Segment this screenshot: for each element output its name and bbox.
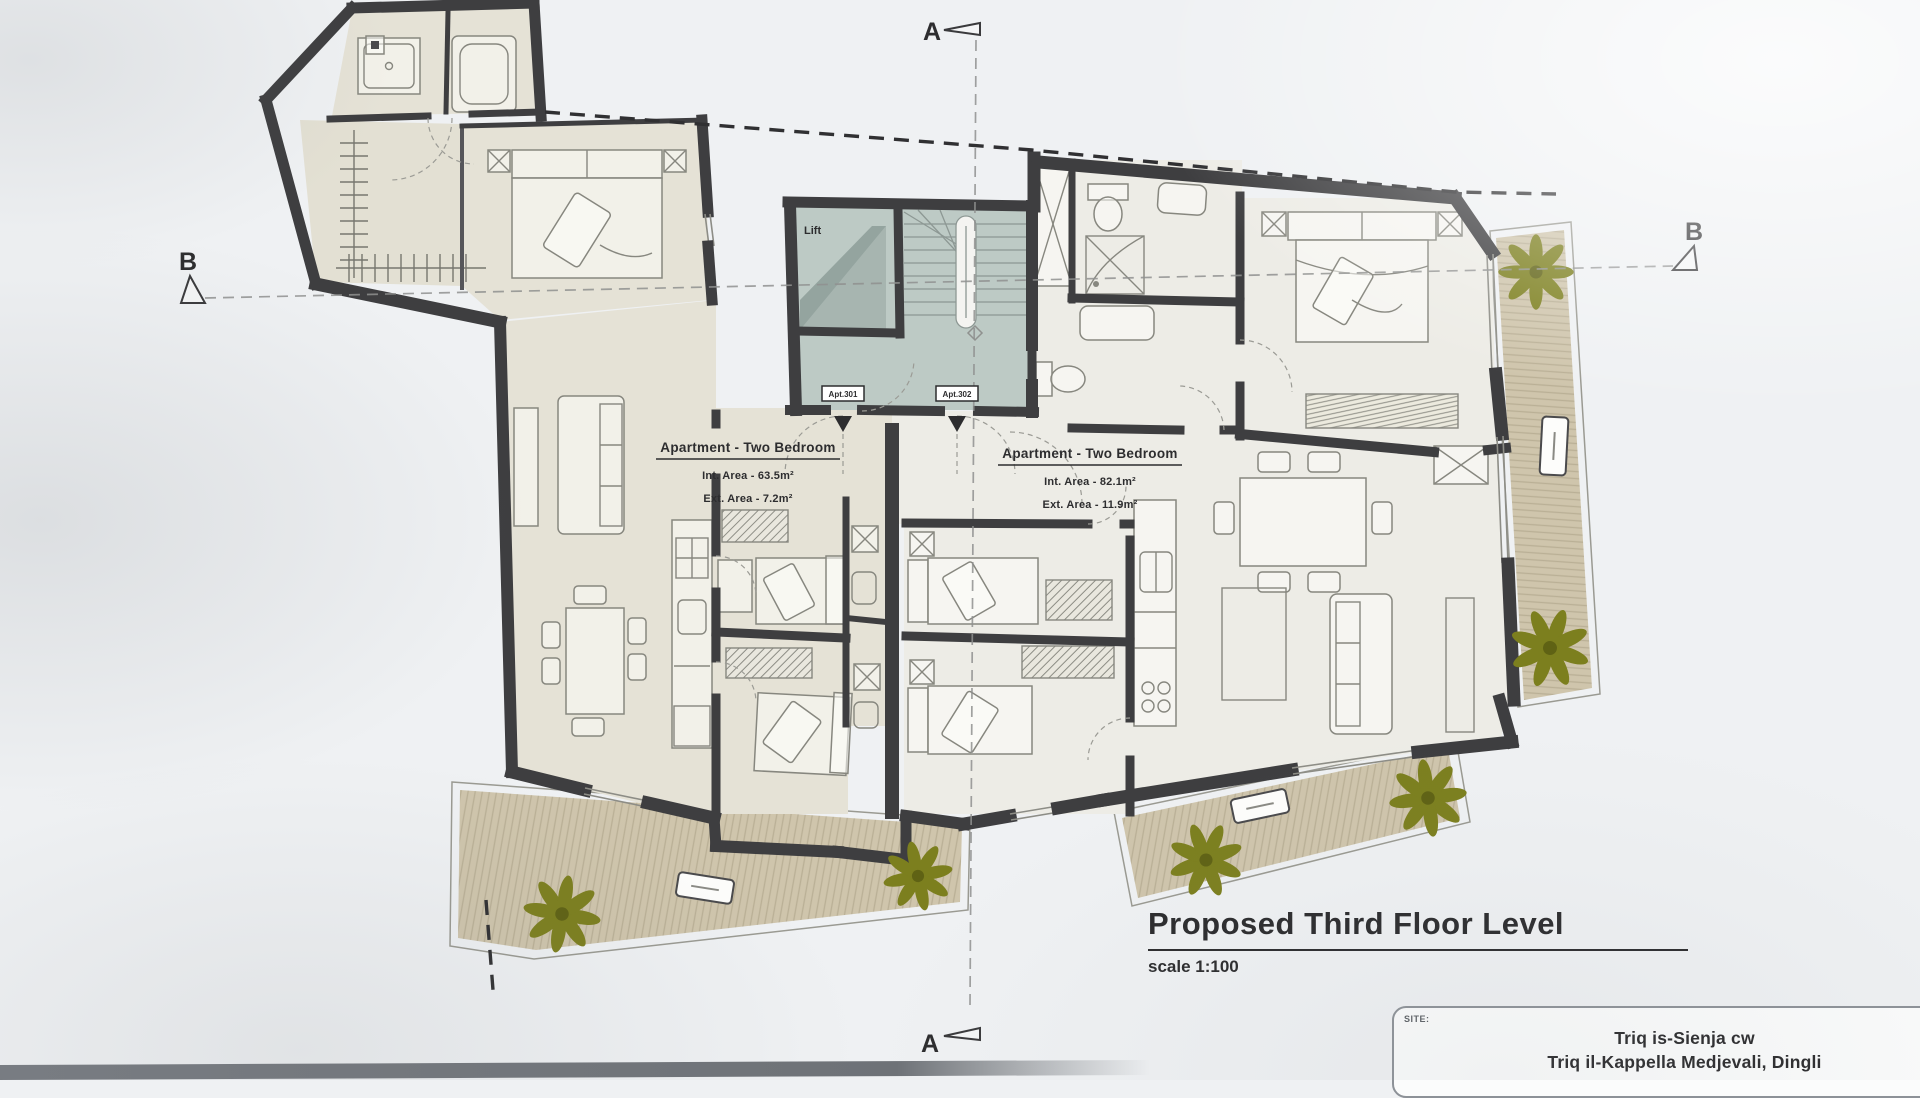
wing-bedroom-bed (488, 150, 686, 278)
apt302-int-area: Int. Area - 82.1m² (1044, 476, 1136, 488)
apt302-ext-area: Ext. Area - 11.9m² (1043, 499, 1138, 511)
drawing-title: Proposed Third Floor Level (1148, 906, 1688, 951)
section-marker-a-top: A (923, 18, 941, 46)
wing-shower-room (358, 36, 420, 94)
apt301-type-label: Apartment - Two Bedroom (660, 440, 835, 455)
apt302-kitchen (1134, 500, 1176, 726)
site-box: SITE: Triq is-Sienja cw Triq il-Kappella… (1392, 1006, 1920, 1098)
apt301-int-area: Int. Area - 63.5m² (702, 470, 794, 482)
section-marker-b-right: B (1685, 218, 1703, 246)
site-address-line2: Triq il-Kappella Medjevali, Dingli (1404, 1050, 1920, 1074)
section-flag-b-right (1673, 246, 1697, 270)
apt301-sofa (558, 396, 624, 534)
section-flag-b-left (181, 276, 205, 303)
balcony-plaque (1540, 416, 1569, 475)
title-block: Proposed Third Floor Level scale 1:100 (1148, 906, 1688, 977)
master-sideboard (1306, 394, 1458, 428)
site-label: SITE: (1404, 1014, 1920, 1024)
apt301-kitchen (672, 520, 712, 748)
apt302-sofa (1330, 594, 1392, 734)
lift-label: Lift (804, 225, 821, 237)
section-marker-b-left: B (179, 248, 197, 276)
section-marker-a-bottom: A (921, 1030, 939, 1058)
apt301-ext-area: Ext. Area - 7.2m² (703, 493, 792, 505)
wing-bathtub (452, 36, 516, 112)
plant-icon (1498, 234, 1573, 309)
apt302-tag: Apt.302 (943, 390, 972, 399)
section-flag-a-top (944, 23, 980, 35)
section-flag-a-bottom (944, 1028, 980, 1040)
site-address-line1: Triq is-Sienja cw (1404, 1026, 1920, 1050)
apt301-tag: Apt.301 (829, 390, 858, 399)
console-table (514, 408, 538, 526)
duct-shaft-right (1434, 446, 1488, 484)
drawing-scale: scale 1:100 (1148, 957, 1688, 977)
apt302-type-label: Apartment - Two Bedroom (1002, 446, 1177, 461)
